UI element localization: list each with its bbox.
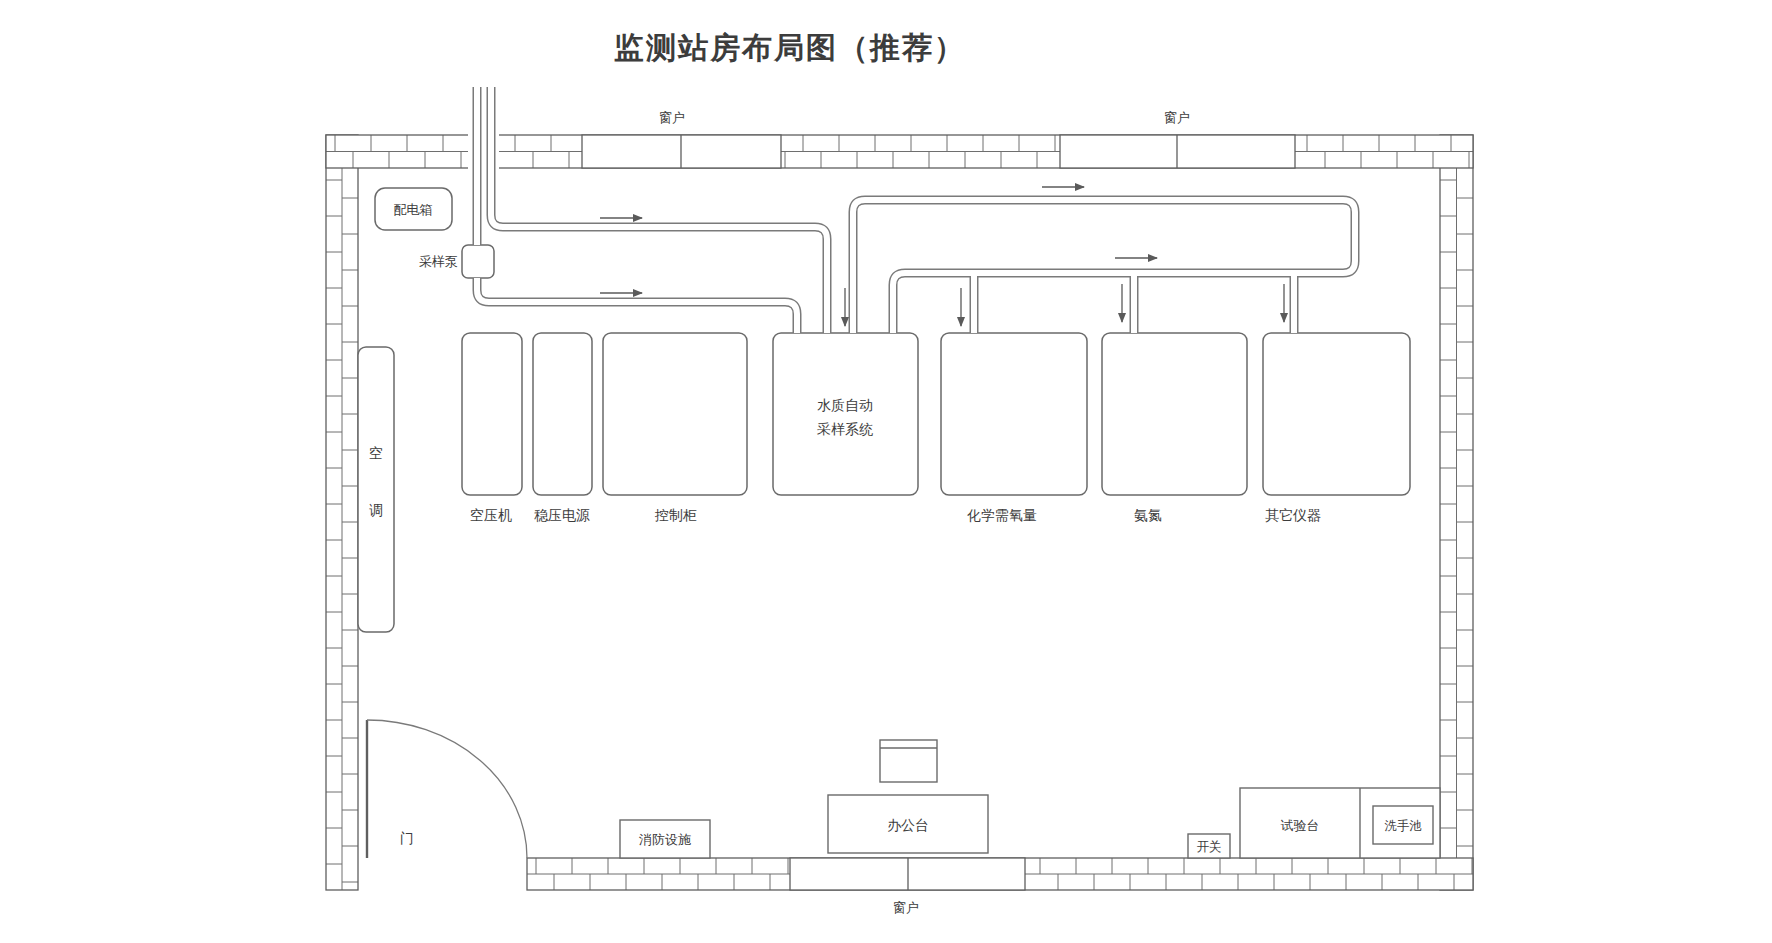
water-sampling-system-label-line1: 水质自动 bbox=[817, 397, 873, 413]
air-conditioner: 空 调 bbox=[358, 347, 394, 632]
sampling-pump: 采样泵 bbox=[419, 245, 494, 278]
page-title: 监测站房布局图（推荐） bbox=[614, 30, 966, 65]
air-compressor-label: 空压机 bbox=[470, 507, 512, 523]
office-desk-group: 办公台 bbox=[828, 740, 988, 853]
sampling-pipes bbox=[477, 87, 1355, 333]
test-bench-label: 试验台 bbox=[1281, 818, 1320, 833]
regulated-power-supply-label: 稳压电源 bbox=[534, 507, 590, 523]
regulated-power-supply-box bbox=[533, 333, 592, 495]
water-quality-auto-sampling-system-box bbox=[773, 333, 918, 495]
ammonia-nitrogen-label: 氨氮 bbox=[1134, 507, 1162, 523]
switch-box: 开关 bbox=[1188, 834, 1230, 858]
air-conditioner-label-char2: 调 bbox=[369, 502, 383, 518]
door bbox=[367, 720, 527, 858]
wash-basin-label: 洗手池 bbox=[1384, 818, 1422, 833]
control-cabinet-box bbox=[603, 333, 747, 495]
desk-chair bbox=[880, 740, 937, 782]
test-bench-group: 试验台 洗手池 bbox=[1240, 788, 1440, 858]
fire-equipment: 消防设施 bbox=[620, 820, 710, 858]
window-bottom bbox=[790, 858, 1025, 890]
air-conditioner-label-char1: 空 bbox=[369, 445, 383, 461]
fire-equipment-label: 消防设施 bbox=[639, 832, 691, 847]
air-compressor-box bbox=[462, 333, 522, 495]
pipe-pump-to-sampler bbox=[477, 278, 797, 333]
other-instruments-label: 其它仪器 bbox=[1265, 507, 1321, 523]
sampling-pump-label: 采样泵 bbox=[419, 254, 458, 269]
ammonia-nitrogen-box bbox=[1102, 333, 1247, 495]
window-top-right bbox=[1060, 135, 1295, 168]
water-sampling-system-label-line2: 采样系统 bbox=[817, 421, 873, 437]
distribution-box-label: 配电箱 bbox=[394, 202, 433, 217]
floor-plan-svg: 监测站房布局图（推荐） 窗户 窗户 窗户 门 配电箱 bbox=[0, 0, 1772, 943]
window-top-left bbox=[582, 135, 781, 168]
pipe-distribution-loop bbox=[853, 200, 1355, 333]
control-cabinet-label: 控制柜 bbox=[654, 507, 697, 523]
window-top-right-label: 窗户 bbox=[1164, 110, 1190, 125]
other-instruments-box bbox=[1263, 333, 1410, 495]
window-top-left-label: 窗户 bbox=[659, 110, 685, 125]
monitoring-station-layout-page: 监测站房布局图（推荐） 窗户 窗户 窗户 门 配电箱 bbox=[0, 0, 1772, 943]
distribution-box: 配电箱 bbox=[375, 188, 452, 230]
office-desk-label: 办公台 bbox=[887, 817, 929, 833]
cod-analyzer-box bbox=[941, 333, 1087, 495]
cod-analyzer-label: 化学需氧量 bbox=[967, 507, 1037, 523]
door-label: 门 bbox=[400, 830, 414, 846]
window-bottom-label: 窗户 bbox=[893, 900, 919, 915]
wall-right bbox=[1440, 135, 1473, 890]
switch-label: 开关 bbox=[1197, 839, 1222, 854]
equipment-row bbox=[462, 333, 1410, 495]
wall-left bbox=[326, 135, 358, 890]
